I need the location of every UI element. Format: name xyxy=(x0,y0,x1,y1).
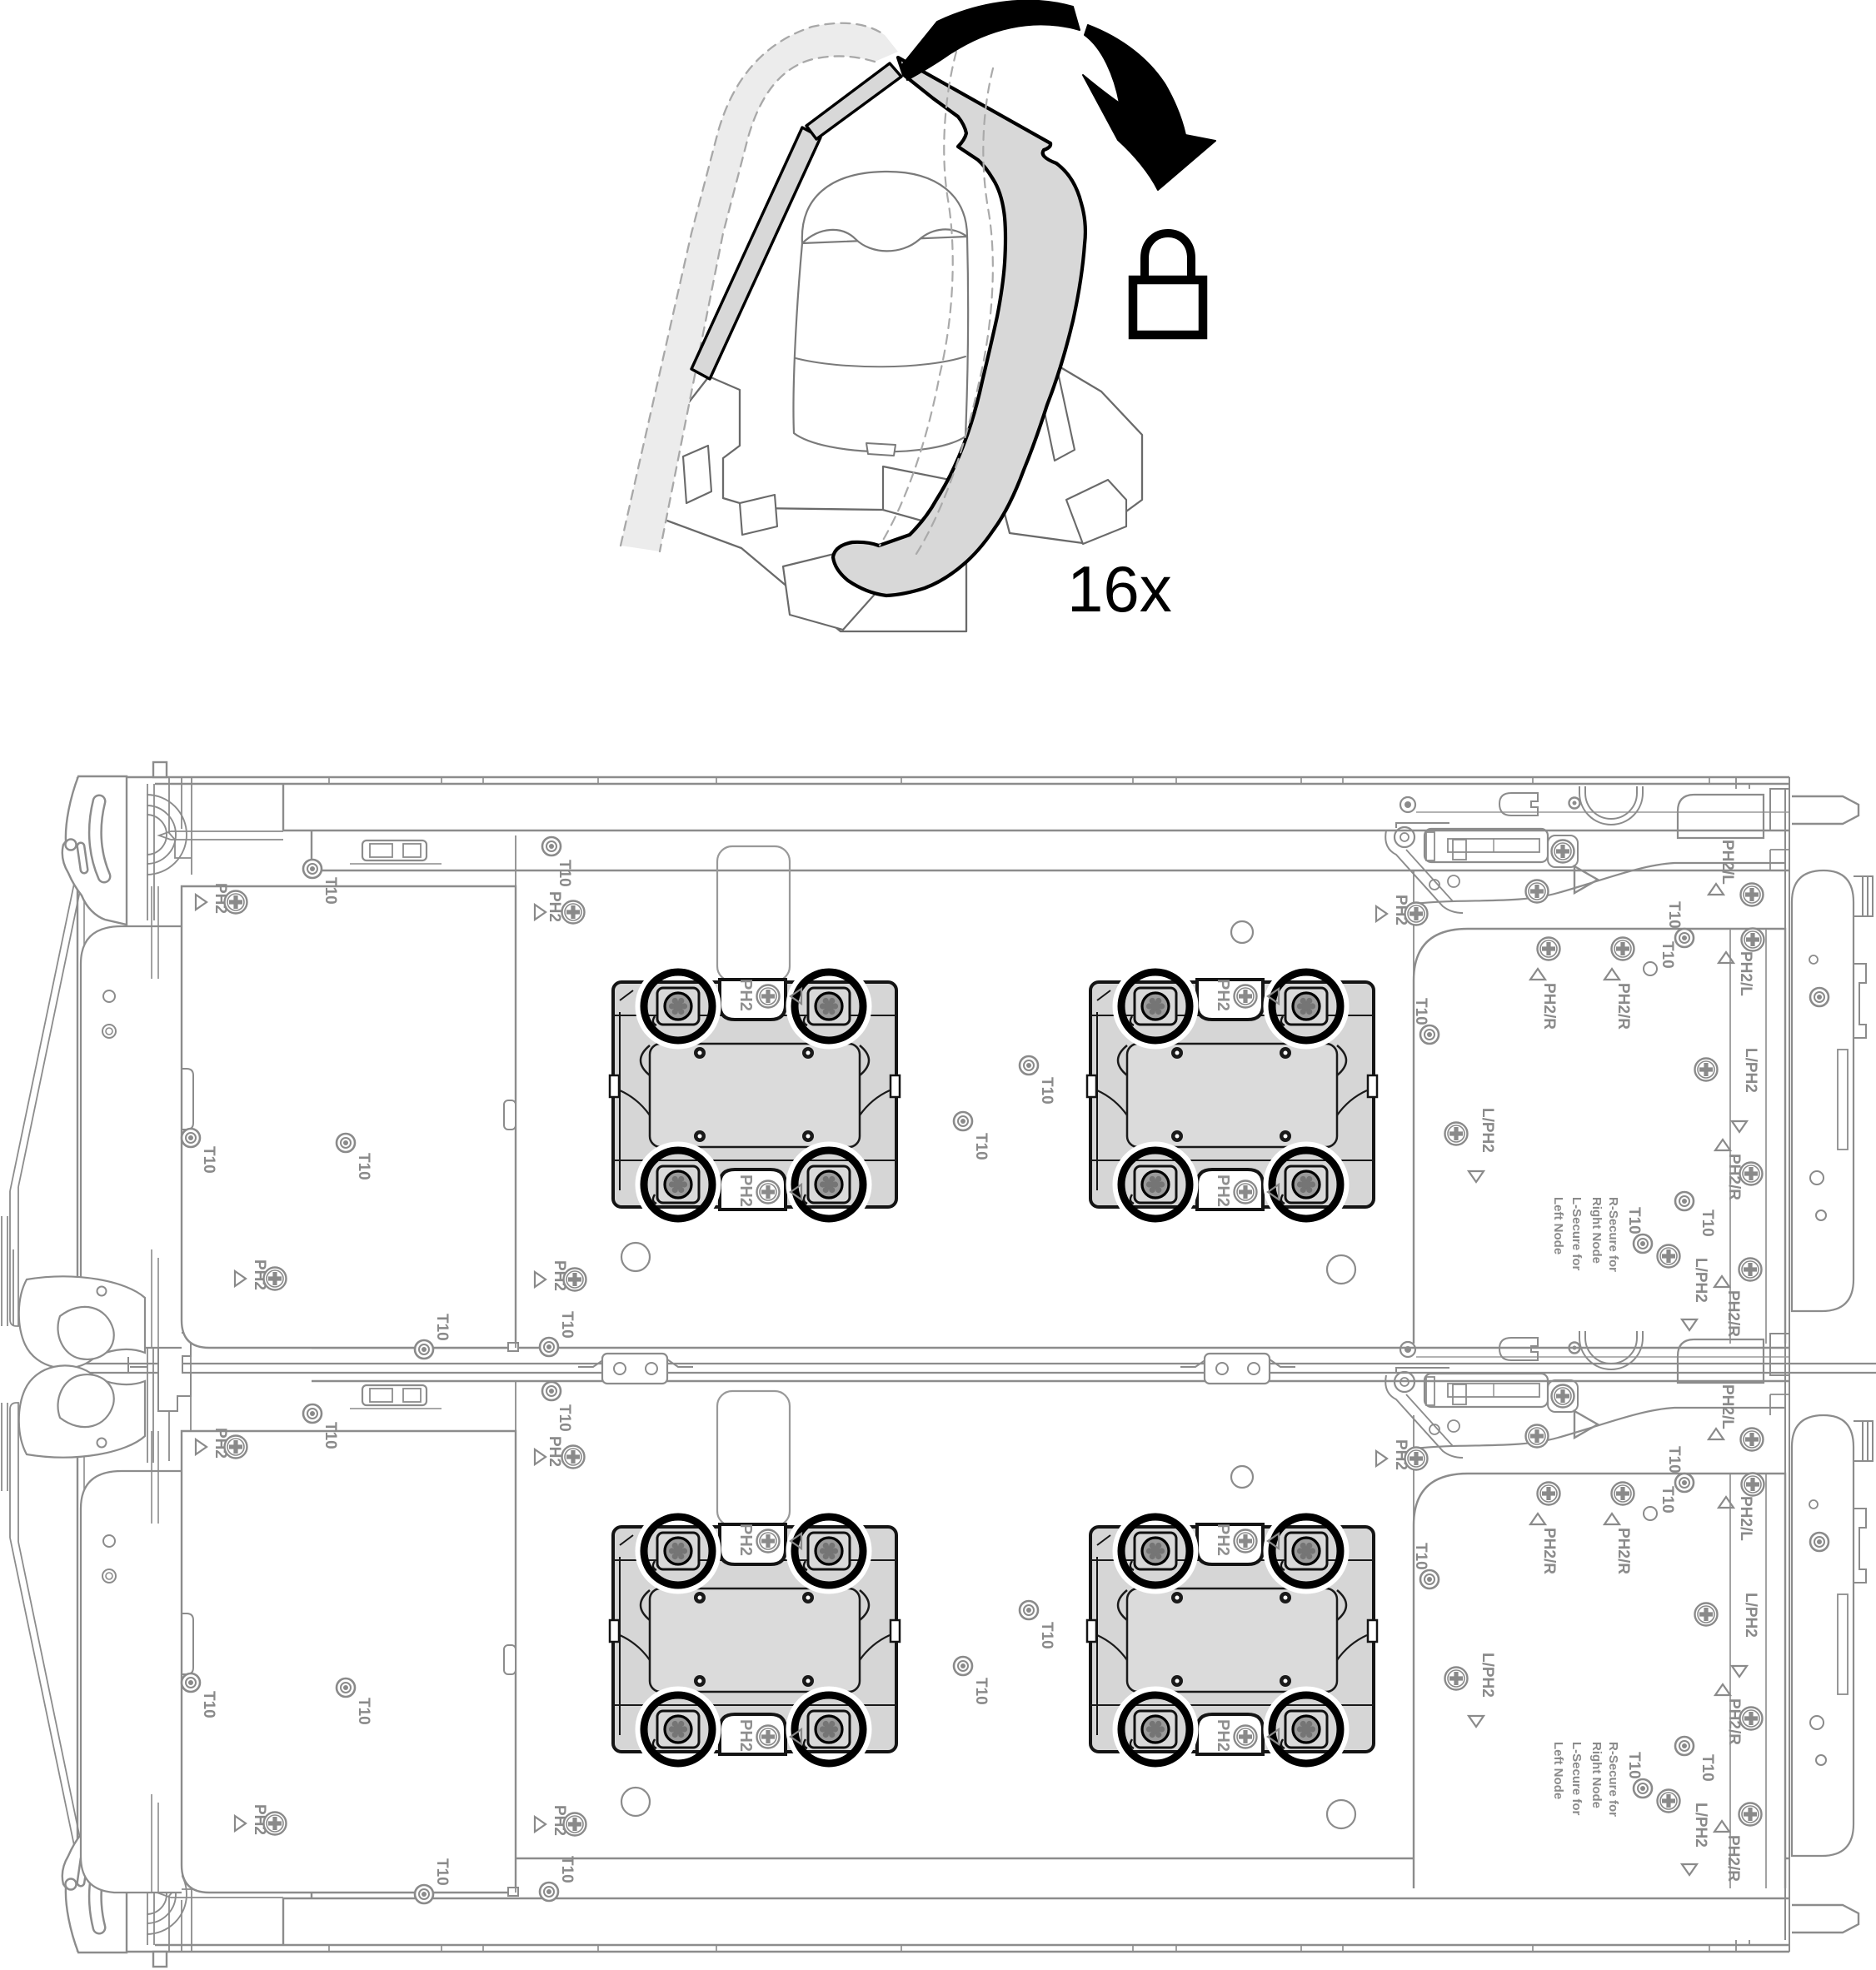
svg-text:16x: 16x xyxy=(1067,552,1172,626)
